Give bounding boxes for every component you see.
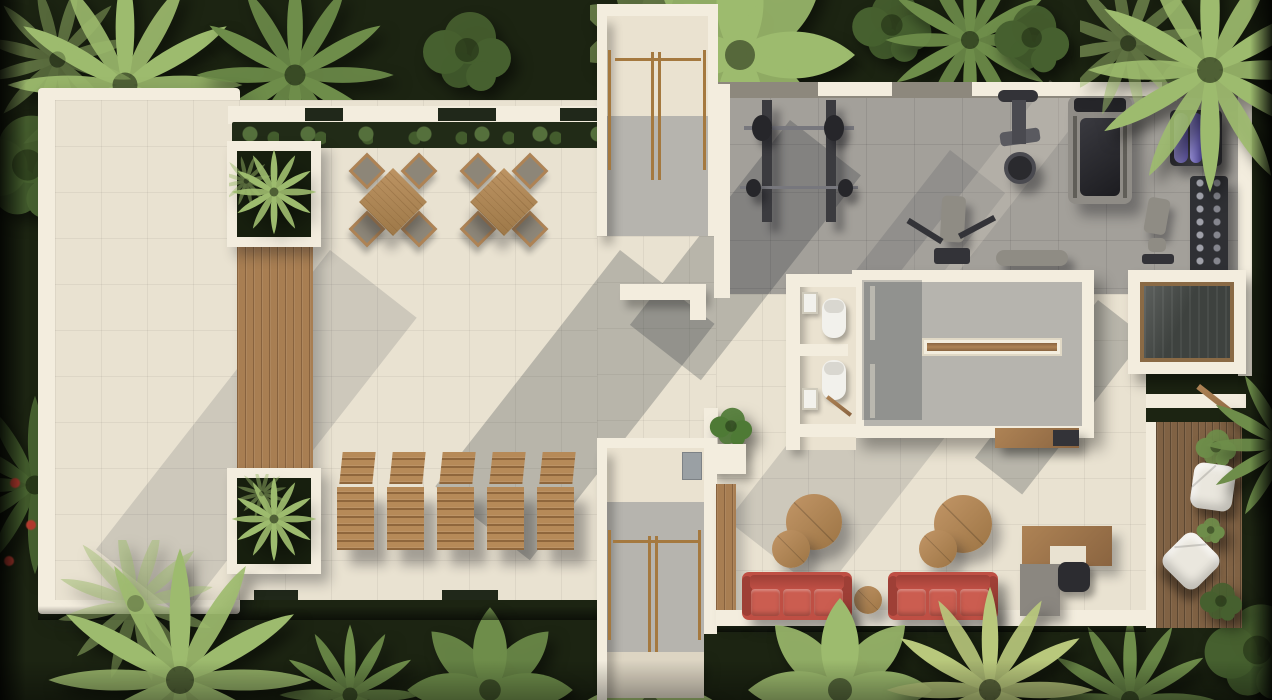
south-wall-window bbox=[442, 590, 498, 600]
sink bbox=[802, 292, 818, 314]
restrooms bbox=[786, 274, 856, 450]
coffee-table-small bbox=[772, 530, 810, 568]
bench-backrest bbox=[1143, 196, 1171, 235]
gym-wall-slab bbox=[818, 82, 892, 96]
north-wall-window bbox=[438, 108, 496, 121]
elliptical-flywheel bbox=[1004, 152, 1036, 184]
lounger-seat bbox=[387, 487, 424, 550]
north-staircase bbox=[597, 4, 718, 236]
sauna-cabin bbox=[1128, 270, 1246, 374]
incline-bench bbox=[1138, 196, 1178, 270]
weight-plate bbox=[752, 115, 772, 141]
sink bbox=[802, 388, 818, 410]
weight-plate bbox=[746, 179, 761, 197]
restroom-wall bbox=[786, 424, 856, 437]
stair-side-rail bbox=[608, 50, 611, 170]
bench-pad bbox=[996, 250, 1068, 266]
lounger-seat bbox=[487, 487, 524, 550]
toilet bbox=[822, 360, 846, 400]
garden-bush bbox=[975, 0, 1085, 80]
stair-wall bbox=[597, 16, 607, 236]
bench-base bbox=[1142, 254, 1174, 264]
red-flower bbox=[4, 556, 14, 566]
sun-lounger bbox=[437, 452, 474, 552]
lounger-backrest bbox=[489, 452, 525, 484]
stair-flight-upper bbox=[870, 286, 1076, 340]
stair-tread bbox=[870, 286, 875, 340]
wall-stub bbox=[690, 284, 706, 320]
restroom-wall bbox=[786, 274, 856, 287]
elliptical-trainer bbox=[998, 90, 1042, 194]
balcony-curb bbox=[1146, 422, 1156, 628]
overhanging-palm bbox=[880, 580, 1100, 700]
red-flower bbox=[26, 520, 36, 530]
garden-bush bbox=[400, 0, 530, 100]
dining-set bbox=[455, 152, 553, 252]
stair-landing bbox=[607, 652, 704, 698]
sun-lounger bbox=[387, 452, 424, 552]
stair-handrail bbox=[651, 52, 661, 180]
weight-plate bbox=[824, 115, 844, 141]
south-staircase bbox=[597, 438, 717, 700]
toilet bbox=[822, 298, 846, 338]
elliptical-column bbox=[1012, 100, 1026, 144]
sofa-backrest bbox=[750, 575, 844, 589]
wood-console bbox=[995, 428, 1079, 448]
stair-side-rail bbox=[703, 50, 706, 170]
plant-pot bbox=[714, 444, 746, 474]
dining-set bbox=[344, 152, 442, 252]
red-flower bbox=[10, 478, 20, 488]
bench-seat bbox=[1148, 238, 1166, 252]
overhanging-palm bbox=[1080, 0, 1272, 200]
lounger-seat bbox=[437, 487, 474, 550]
squat-rack bbox=[746, 98, 852, 226]
stair-tread bbox=[870, 364, 875, 418]
lounger-backrest bbox=[439, 452, 475, 484]
weight-machine bbox=[903, 192, 999, 270]
stair-wall bbox=[597, 4, 718, 16]
sun-lounger bbox=[537, 452, 574, 552]
stair-side-rail bbox=[698, 530, 701, 640]
utility-panel bbox=[682, 452, 702, 480]
overhanging-palm bbox=[30, 540, 330, 700]
sun-lounger bbox=[487, 452, 524, 552]
restroom-stall-divider bbox=[786, 344, 848, 356]
balcony-plant bbox=[1196, 576, 1244, 626]
planter-palm bbox=[229, 147, 319, 237]
stair-side-rail bbox=[608, 530, 611, 640]
weight-plate bbox=[838, 179, 853, 197]
stair-flight-lower bbox=[870, 364, 1076, 418]
edge-palm bbox=[1200, 360, 1272, 530]
machine-arm bbox=[906, 218, 943, 244]
main-staircase bbox=[852, 270, 1094, 438]
handrail-wood-bar bbox=[927, 343, 1057, 351]
sun-lounger-row bbox=[337, 452, 574, 552]
north-wall-window bbox=[305, 108, 343, 121]
console-equipment bbox=[1053, 430, 1079, 446]
stair-center-handrail bbox=[922, 338, 1062, 356]
stair-wall bbox=[597, 448, 607, 700]
floor-plan-scene bbox=[0, 0, 1272, 700]
lounger-backrest bbox=[539, 452, 575, 484]
timber-deck-strip bbox=[237, 246, 313, 472]
machine-base bbox=[934, 248, 970, 264]
coffee-table-small bbox=[919, 530, 957, 568]
sauna-glass-roof bbox=[1140, 282, 1234, 362]
sun-lounger bbox=[337, 452, 374, 552]
treadmill-rail bbox=[1073, 116, 1077, 198]
gym-west-wall bbox=[714, 84, 730, 298]
lounger-backrest bbox=[339, 452, 375, 484]
lounger-seat bbox=[337, 487, 374, 550]
lounger-backrest bbox=[389, 452, 425, 484]
stair-wall bbox=[597, 438, 717, 448]
walkway bbox=[597, 236, 718, 442]
stair-handrail bbox=[648, 536, 658, 652]
lounger-seat bbox=[537, 487, 574, 550]
palm-planter bbox=[227, 141, 321, 247]
